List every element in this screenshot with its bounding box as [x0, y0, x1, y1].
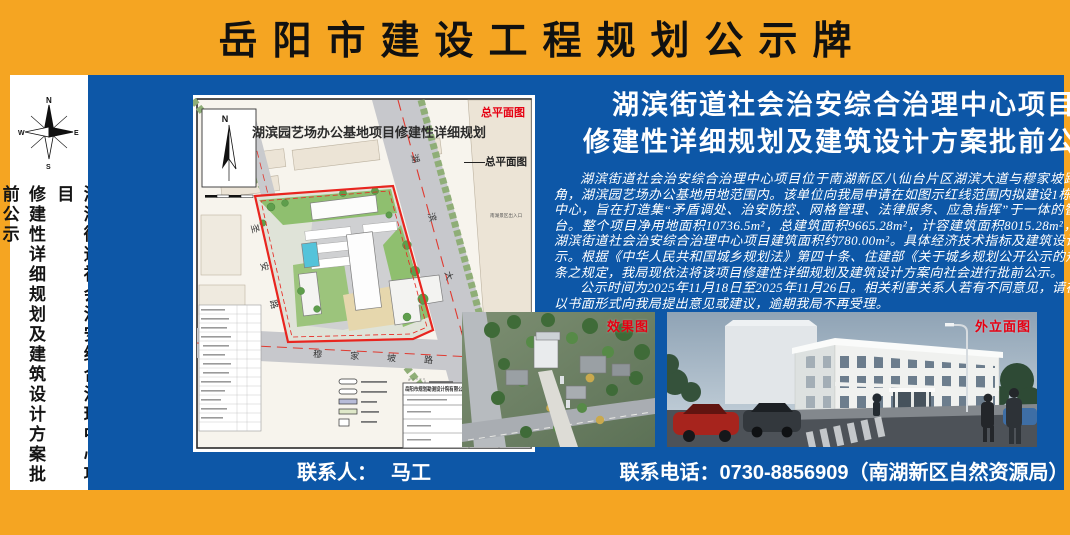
notice-paragraph-2: 公示时间为2025年11月18日至2025年11月26日。相关利害关系人若有不同… [554, 280, 1070, 311]
header-band: 岳阳市建设工程规划公示牌 [0, 0, 1070, 75]
plan-corner-label: 总平面图 [481, 105, 525, 119]
notice-title-line1: 湖滨街道社会治安综合治理中心项目 [540, 87, 1070, 124]
main-content-area: N 湖滨园艺场办公基地项目修建性详细规划 总平面图 ——总平面图 南湖景区出入口 [88, 75, 1064, 490]
svg-text:S: S [46, 164, 51, 171]
poi-label: 南湖景区出入口 [490, 212, 523, 219]
contact-phone-row: 联系电话： 0730-8856909（南湖新区自然资源局） [540, 453, 1070, 487]
svg-text:E: E [74, 130, 79, 137]
notice-title: 湖滨街道社会治安综合治理中心项目 修建性详细规划及建筑设计方案批前公示 [540, 87, 1070, 161]
notice-paragraph-1: 湖滨街道社会治安综合治理中心项目位于南湖新区八仙台片区湖滨大道与穆家坡路交叉口西… [554, 171, 1070, 280]
contact-person-row: 联系人： 马工 [193, 452, 535, 488]
scale-bar [205, 195, 253, 198]
contact-person-label: 联系人： [297, 456, 377, 485]
indicator-table [199, 305, 261, 431]
board-title: 岳阳市建设工程规划公示牌 [203, 10, 866, 66]
footer-band: http://zygh.yueyang.gov.cn 岳阳市自然资源和规划局监制 [0, 490, 1070, 535]
plan-caption: ——总平面图 [464, 155, 527, 168]
svg-text:N: N [46, 96, 52, 105]
left-title-strip: N E W S 湖滨街道社会治安综合治理中心项目 修建性详细规划及建筑设计方案批… [10, 75, 88, 490]
aerial-render-label: 效果图 [607, 316, 649, 335]
design-company-name: 岳阳市规划勘测设计院有限公司 [405, 385, 467, 393]
notice-body: 湖滨街道社会治安综合治理中心项目位于南湖新区八仙台片区湖滨大道与穆家坡路交叉口西… [554, 171, 1070, 311]
contact-person-name: 马工 [391, 456, 431, 485]
plan-drawing-title: 湖滨园艺场办公基地项目修建性详细规划 [252, 125, 486, 140]
facade-render-image: 外立面图 [667, 312, 1037, 447]
svg-text:N: N [222, 114, 229, 124]
compass-rose-icon: N E W S [17, 93, 81, 171]
facade-render-label: 外立面图 [975, 316, 1031, 335]
planning-notice-board: 岳阳市建设工程规划公示牌 N E W S 湖滨街道社会治安综合治理中心项目 修建… [0, 0, 1070, 535]
aerial-render-image: 效果图 [462, 312, 655, 447]
svg-text:W: W [18, 130, 25, 137]
contact-phone-value: 0730-8856909（南湖新区自然资源局） [719, 456, 1068, 485]
notice-title-line2: 修建性详细规划及建筑设计方案批前公示 [540, 124, 1070, 161]
side-title-line2: 修建性详细规划及建筑设计方案批前公示 [0, 185, 48, 485]
plan-north-arrow-icon: N [202, 109, 256, 198]
contact-phone-label: 联系电话： [619, 456, 719, 485]
